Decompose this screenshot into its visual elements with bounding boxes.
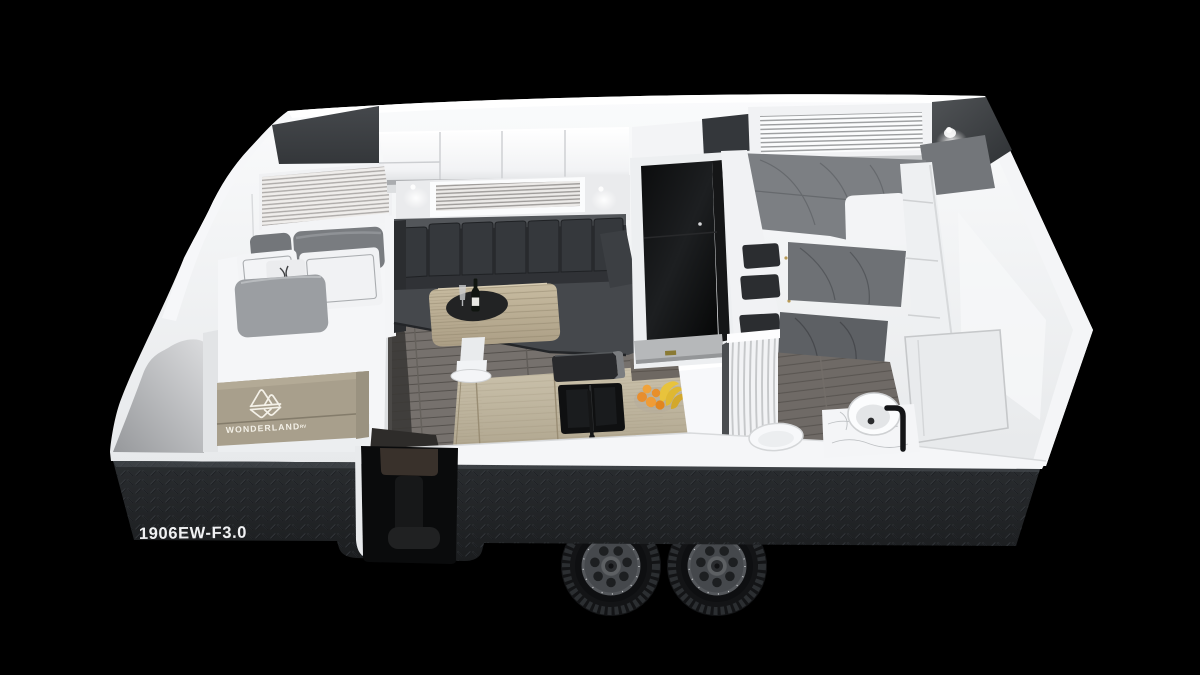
svg-text:1906EW-F3.0: 1906EW-F3.0 [139, 524, 247, 543]
